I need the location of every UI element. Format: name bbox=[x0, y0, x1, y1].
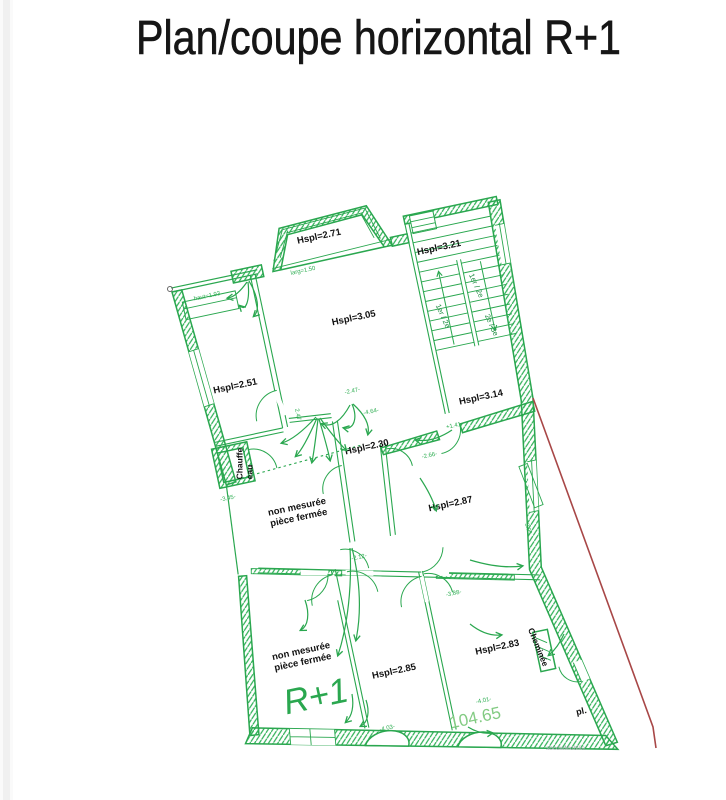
svg-text:Hspl=3.14: Hspl=3.14 bbox=[458, 387, 505, 407]
svg-text:haut=1.93: haut=1.93 bbox=[193, 291, 221, 303]
svg-text:sbcdwMobilia: sbcdwMobilia bbox=[546, 745, 585, 752]
svg-text:-4.64-: -4.64- bbox=[363, 408, 380, 417]
svg-text:Plan/coupe horizontal R+1: Plan/coupe horizontal R+1 bbox=[136, 12, 621, 65]
svg-text:104.65: 104.65 bbox=[448, 703, 503, 732]
svg-text:Chauffe: Chauffe bbox=[235, 448, 245, 480]
svg-text:-3.88-: -3.88- bbox=[445, 589, 462, 598]
svg-text:+1.41: +1.41 bbox=[446, 422, 463, 431]
svg-text:eau: eau bbox=[245, 465, 255, 480]
svg-text:Hspl=2.85: Hspl=2.85 bbox=[371, 661, 418, 681]
svg-text:R+1: R+1 bbox=[280, 671, 352, 723]
svg-text:Hspl=3.05: Hspl=3.05 bbox=[331, 308, 378, 328]
svg-text:Hspl=2.51: Hspl=2.51 bbox=[212, 376, 259, 396]
svg-text:1er / 2e: 1er / 2e bbox=[467, 272, 486, 299]
svg-text:Hspl=2.83: Hspl=2.83 bbox=[474, 638, 520, 658]
svg-text:2.47: 2.47 bbox=[293, 408, 301, 421]
svg-text:pl.: pl. bbox=[575, 705, 587, 717]
svg-text:-2.66-: -2.66- bbox=[421, 451, 438, 460]
svg-text:-2.47-: -2.47- bbox=[344, 387, 361, 396]
